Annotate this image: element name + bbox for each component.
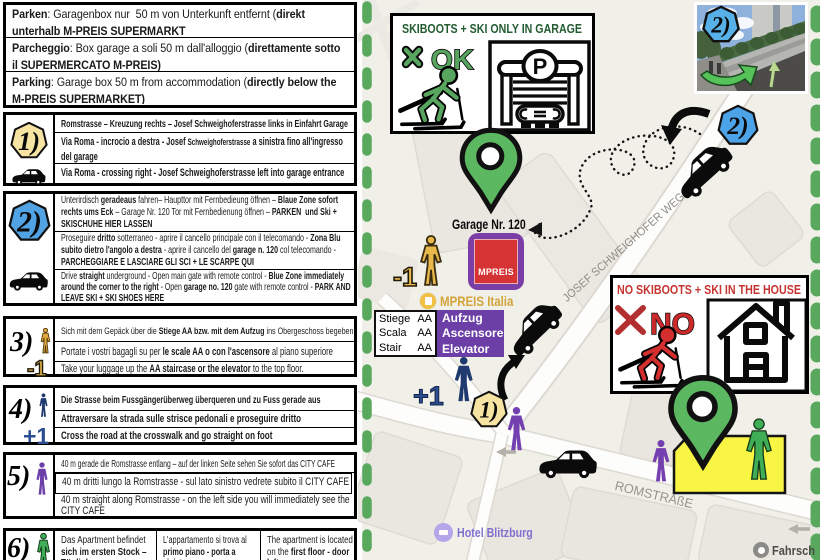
- svg-text:1): 1): [479, 397, 498, 423]
- svg-text:-1: -1: [393, 262, 417, 292]
- svg-text:+1: +1: [413, 381, 444, 411]
- svg-text:SKIBOOTS + SKI ONLY IN GARAGE: SKIBOOTS + SKI ONLY IN GARAGE: [402, 22, 582, 36]
- svg-text:2): 2): [726, 111, 748, 140]
- svg-text:NO SKIBOOTS + SKI IN THE HOUSE: NO SKIBOOTS + SKI IN THE HOUSE: [617, 282, 801, 297]
- svg-text:1): 1): [18, 126, 40, 156]
- svg-text:P: P: [533, 54, 548, 79]
- svg-text:2): 2): [710, 12, 730, 38]
- svg-text:2): 2): [16, 207, 42, 239]
